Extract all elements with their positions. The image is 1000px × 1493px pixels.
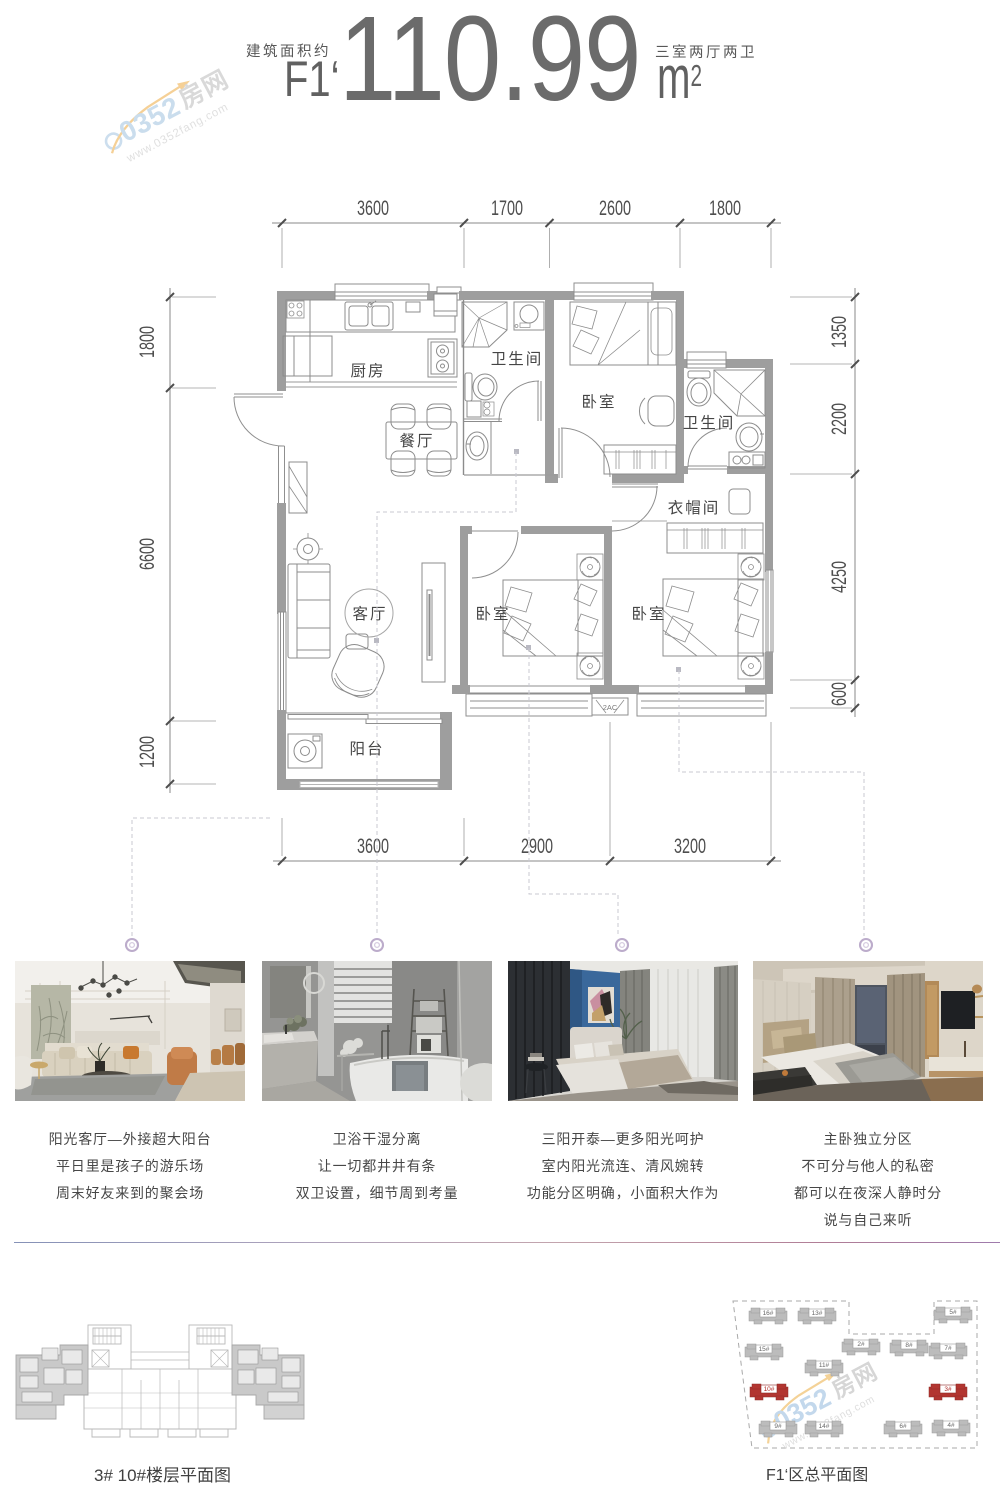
svg-text:1800: 1800 [709, 197, 741, 220]
svg-text:2900: 2900 [521, 835, 553, 858]
svg-text:3200: 3200 [674, 835, 706, 858]
svg-text:2AC: 2AC [603, 703, 618, 712]
svg-text:阳台: 阳台 [349, 740, 384, 758]
svg-text:11#: 11# [819, 1362, 830, 1369]
svg-text:10#: 10# [764, 1386, 775, 1393]
svg-text:15#: 15# [759, 1346, 770, 1353]
svg-text:13#: 13# [812, 1310, 823, 1317]
svg-text:1700: 1700 [491, 197, 523, 220]
svg-text:2#: 2# [857, 1341, 865, 1348]
svg-text:3#: 3# [944, 1386, 952, 1393]
svg-text:9#: 9# [774, 1423, 782, 1430]
svg-text:餐厅: 餐厅 [399, 432, 434, 450]
svg-text:7#: 7# [944, 1345, 952, 1352]
svg-text:4250: 4250 [828, 561, 851, 593]
svg-text:厨房: 厨房 [350, 362, 385, 380]
svg-text:衣帽间: 衣帽间 [668, 499, 721, 517]
svg-text:3600: 3600 [357, 835, 389, 858]
svg-text:2600: 2600 [599, 197, 631, 220]
svg-text:1800: 1800 [136, 326, 159, 358]
svg-text:1200: 1200 [136, 736, 159, 768]
svg-text:1350: 1350 [828, 316, 851, 348]
svg-text:客厅: 客厅 [352, 605, 387, 623]
svg-text:卧室: 卧室 [631, 605, 666, 623]
svg-text:卧室: 卧室 [475, 605, 510, 623]
svg-text:3600: 3600 [357, 197, 389, 220]
svg-text:卫生间: 卫生间 [683, 414, 736, 432]
svg-text:5#: 5# [949, 1309, 957, 1316]
svg-text:2200: 2200 [828, 403, 851, 435]
svg-text:4#: 4# [947, 1422, 955, 1429]
svg-text:14#: 14# [819, 1423, 830, 1430]
svg-text:卧室: 卧室 [581, 393, 616, 411]
svg-text:8#: 8# [905, 1342, 913, 1349]
svg-text:16#: 16# [763, 1310, 774, 1317]
svg-text:6600: 6600 [136, 538, 159, 570]
svg-text:600: 600 [828, 682, 851, 706]
svg-text:卫生间: 卫生间 [491, 350, 544, 368]
svg-text:6#: 6# [899, 1423, 907, 1430]
